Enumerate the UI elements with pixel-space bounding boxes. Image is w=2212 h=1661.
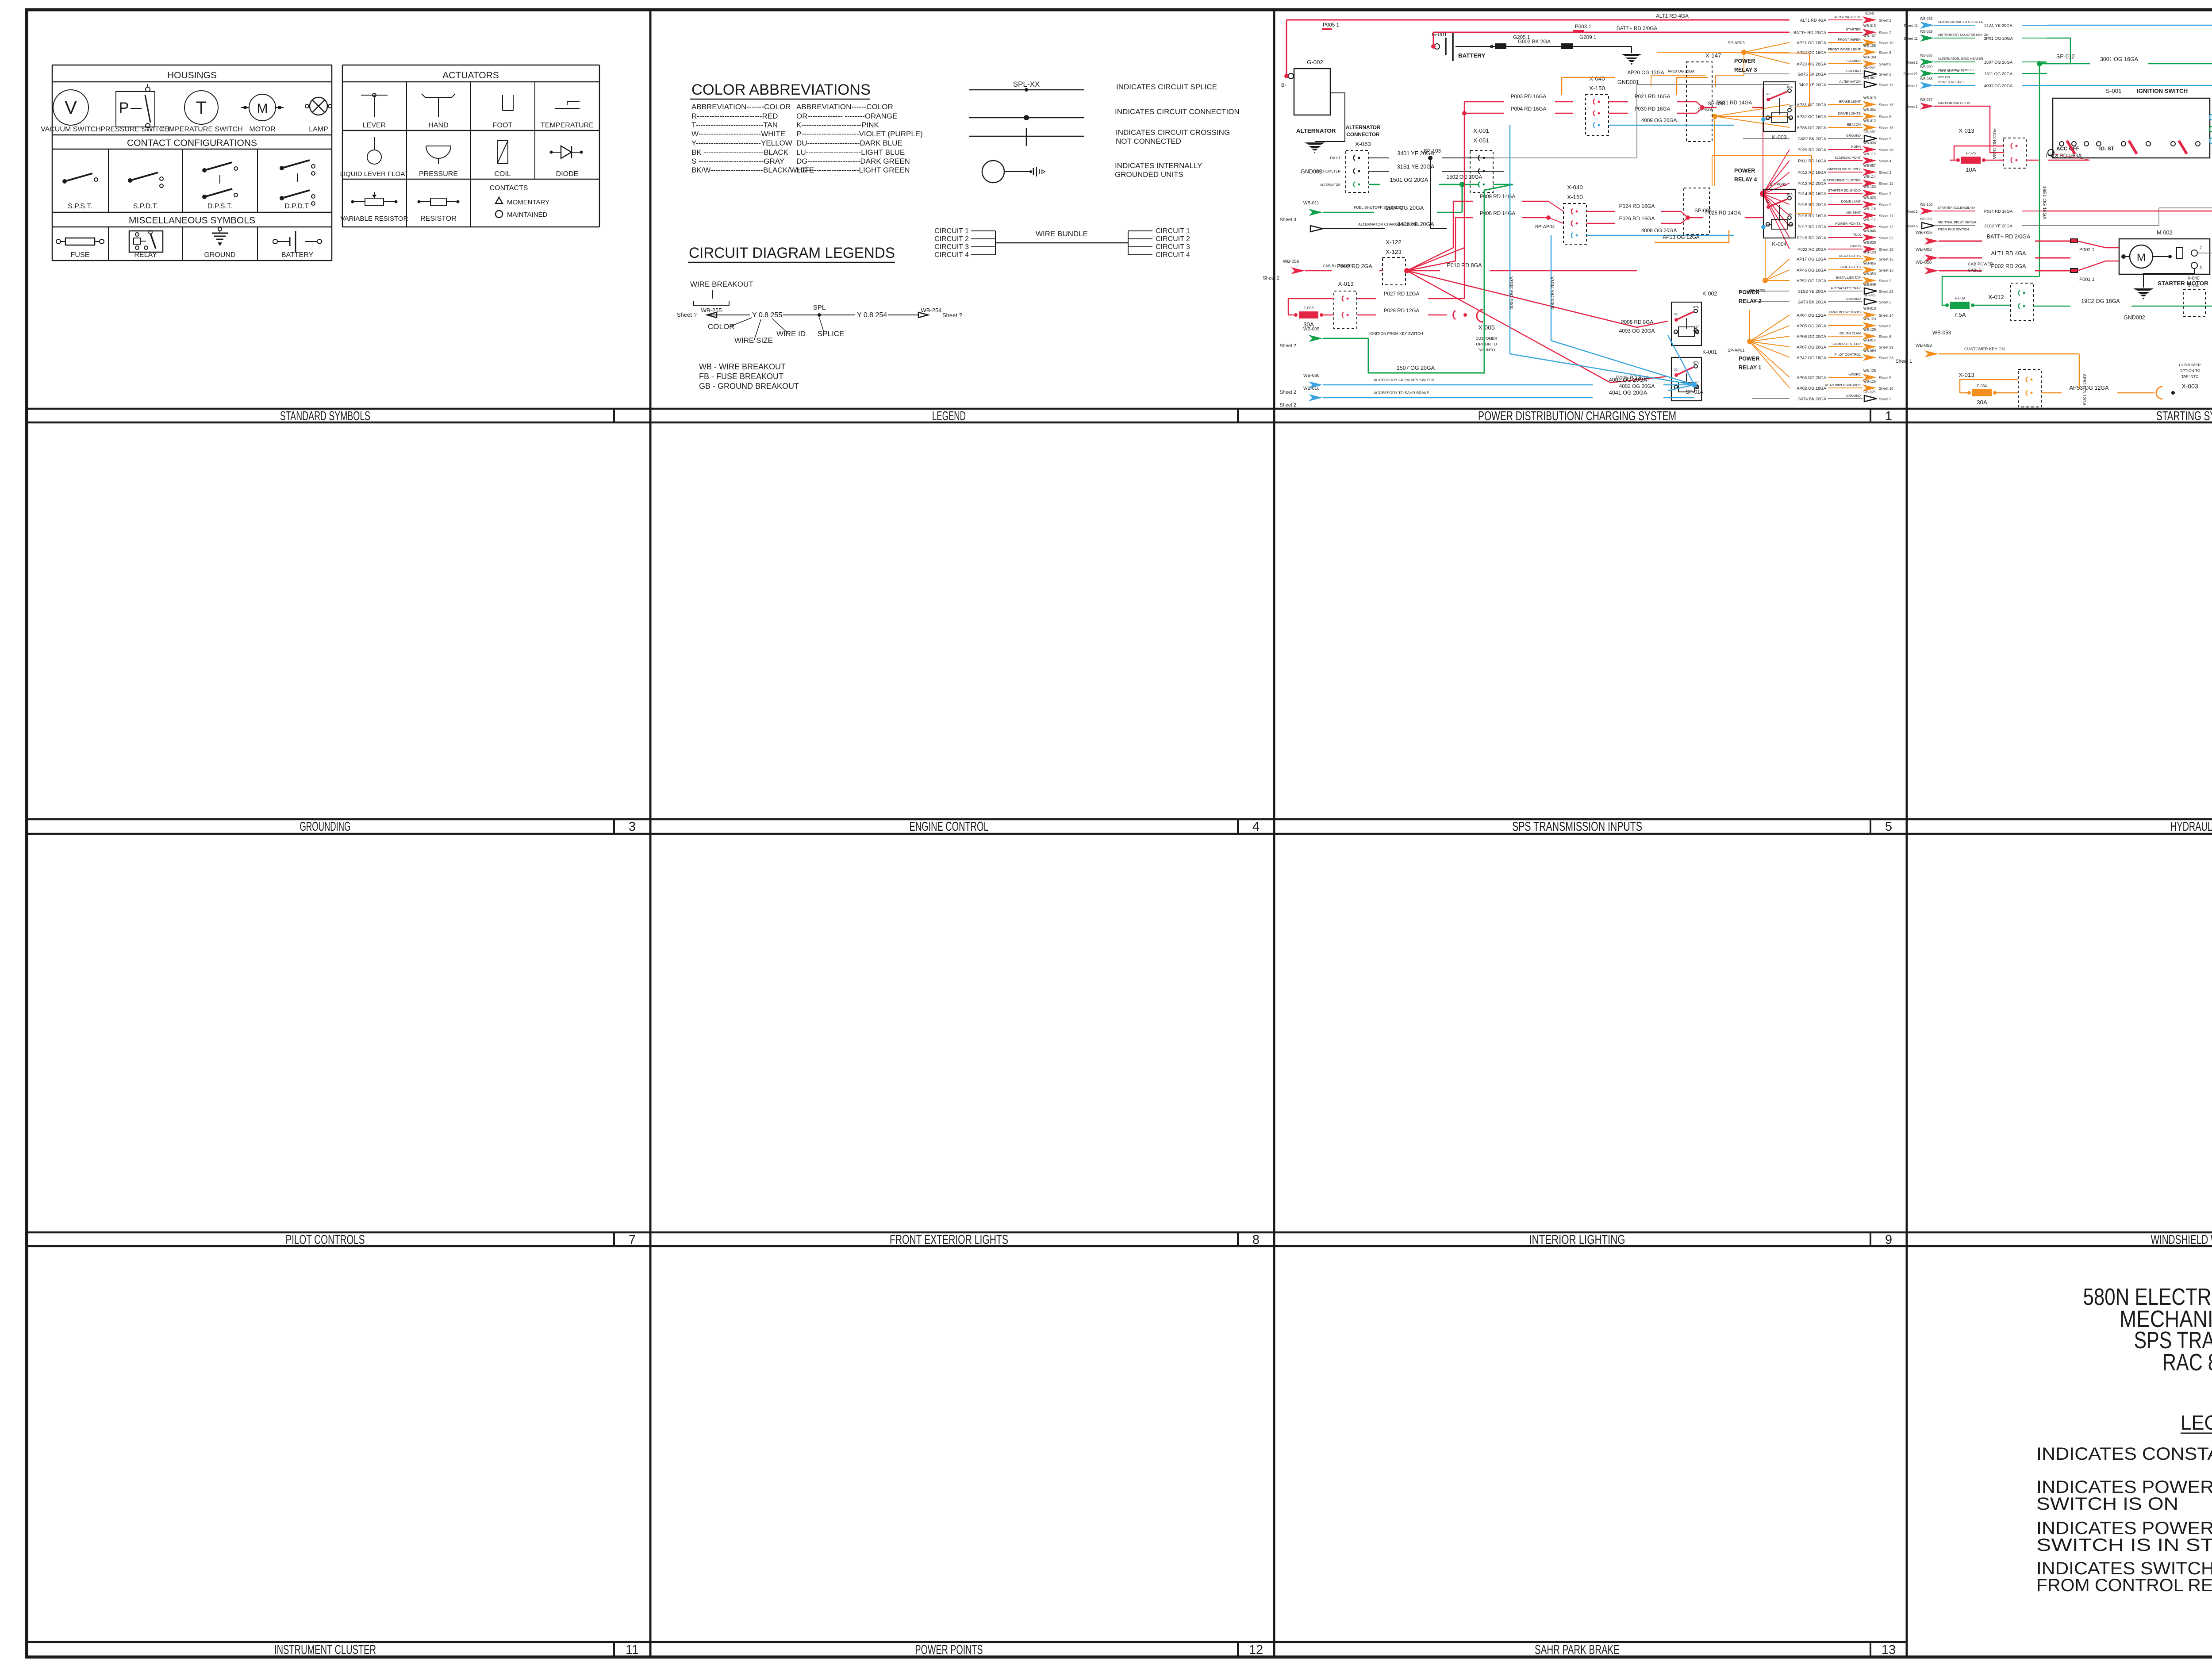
svg-text:COLOR ABBREVIATIONS: COLOR ABBREVIATIONS <box>691 81 871 98</box>
svg-text:BATTERY: BATTERY <box>1458 52 1485 59</box>
svg-text:TRAX: TRAX <box>1852 233 1861 237</box>
svg-text:WB-046: WB-046 <box>1863 229 1876 233</box>
svg-text:ALT TACH TO TRAX: ALT TACH TO TRAX <box>1831 286 1861 290</box>
svg-text:4006 OG 20GA: 4006 OG 20GA <box>1509 276 1514 310</box>
svg-text:CIRCUIT 3: CIRCUIT 3 <box>1156 243 1190 251</box>
svg-text:WB-004: WB-004 <box>1863 108 1876 112</box>
svg-text:M: M <box>2137 252 2146 264</box>
svg-text:R--------------------------RED: R--------------------------RED <box>691 112 778 120</box>
svg-text:Sheet 2: Sheet 2 <box>1279 343 1296 349</box>
svg-text:FROM FNR SWITCH: FROM FNR SWITCH <box>1938 227 1969 231</box>
svg-text:30: 30 <box>1674 368 1678 372</box>
svg-text:TAP INTO: TAP INTO <box>2181 374 2199 379</box>
svg-text:4: 4 <box>1252 820 1260 834</box>
svg-text:SP-AP04: SP-AP04 <box>1535 224 1555 230</box>
svg-text:INSTRUMENT CLUSTER KEY ON: INSTRUMENT CLUSTER KEY ON <box>1938 33 1989 37</box>
svg-text:COMFORT STEER: COMFORT STEER <box>1832 342 1861 346</box>
svg-text:FROM CONTROL RELAYS: FROM CONTROL RELAYS <box>2036 1576 2212 1595</box>
svg-text:Sheet 14: Sheet 14 <box>1879 314 1893 318</box>
svg-text:STARTER MOTOR: STARTER MOTOR <box>2158 280 2208 287</box>
svg-text:MOMENTARY: MOMENTARY <box>507 199 549 206</box>
svg-text:ACCESSORY FROM KEY SWITCH: ACCESSORY FROM KEY SWITCH <box>1374 378 1434 382</box>
svg-text:3: 3 <box>2200 265 2202 270</box>
svg-text:Sheet 2: Sheet 2 <box>1879 279 1892 283</box>
svg-text:CABLE: CABLE <box>1968 268 1982 272</box>
svg-text:VACUUM SWITCH: VACUUM SWITCH <box>41 126 101 133</box>
svg-text:SAHR PARK BRAKE: SAHR PARK BRAKE <box>1535 1643 1620 1657</box>
svg-text:Sheet 22: Sheet 22 <box>1879 290 1893 294</box>
svg-text:Sheet 1: Sheet 1 <box>1905 105 1918 109</box>
svg-text:WB-053: WB-053 <box>1932 330 1951 336</box>
svg-text:Sheet 16: Sheet 16 <box>1879 269 1893 272</box>
svg-text:GB - GROUND BREAKOUT: GB - GROUND BREAKOUT <box>699 382 799 391</box>
svg-text:Sheet 3: Sheet 3 <box>1879 73 1892 77</box>
svg-text:4009 OG 20GA: 4009 OG 20GA <box>1641 118 1677 123</box>
svg-text:Sheet 5: Sheet 5 <box>1905 224 1918 228</box>
svg-text:ALTERNATOR: ALTERNATOR <box>1839 80 1861 84</box>
svg-text:Sheet 6: Sheet 6 <box>1879 324 1892 328</box>
svg-text:WB-117: WB-117 <box>1863 218 1876 222</box>
svg-text:BK ------------------------BLA: BK ------------------------BLACK <box>691 148 789 157</box>
svg-text:BATTERY: BATTERY <box>281 251 314 259</box>
svg-text:Sheet 12: Sheet 12 <box>1879 225 1893 229</box>
svg-text:AP23 OG 20GA: AP23 OG 20GA <box>1797 61 1826 66</box>
svg-text:X-003: X-003 <box>2181 383 2198 390</box>
svg-text:4041 OG 20GA: 4041 OG 20GA <box>1609 390 1647 396</box>
svg-text:AP04 OG 12GA: AP04 OG 12GA <box>1797 313 1826 318</box>
svg-text:WB-005: WB-005 <box>1920 54 1933 58</box>
svg-text:BATT+ RD 2/0GA: BATT+ RD 2/0GA <box>1987 234 2031 240</box>
svg-text:1507 OG 20GA: 1507 OG 20GA <box>1984 60 2013 65</box>
svg-text:FB - FUSE BREAKOUT: FB - FUSE BREAKOUT <box>699 372 783 381</box>
svg-text:3P01 OG 20GA: 3P01 OG 20GA <box>1984 36 2013 41</box>
svg-text:INSTRUMENT CLUSTER: INSTRUMENT CLUSTER <box>274 1643 376 1657</box>
svg-text:WB-053: WB-053 <box>1916 343 1932 348</box>
svg-text:ALT1 RD 4GA: ALT1 RD 4GA <box>1800 18 1827 23</box>
svg-text:Sheet 18: Sheet 18 <box>1879 148 1893 152</box>
svg-text:HORN: HORN <box>1851 145 1861 149</box>
svg-text:S-001: S-001 <box>2106 88 2121 94</box>
svg-text:CONTACTS: CONTACTS <box>490 184 528 192</box>
svg-text:POWER RELAYS: POWER RELAYS <box>1938 80 1964 84</box>
svg-text:3001 OG 16GA: 3001 OG 16GA <box>2100 56 2139 62</box>
svg-text:P005 1: P005 1 <box>1323 22 1339 28</box>
svg-text:Sheet 22: Sheet 22 <box>1879 236 1893 240</box>
svg-text:Sheet 1: Sheet 1 <box>1905 84 1918 88</box>
svg-text:WIRE BREAKOUT: WIRE BREAKOUT <box>690 280 753 288</box>
svg-text:Sheet 10: Sheet 10 <box>1879 387 1893 391</box>
svg-text:RELAY 3: RELAY 3 <box>1734 67 1757 73</box>
svg-text:Sheet 10: Sheet 10 <box>1879 41 1893 45</box>
svg-text:P024 RD 16GA: P024 RD 16GA <box>1619 203 1655 209</box>
svg-text:X-040: X-040 <box>1567 184 1582 191</box>
svg-text:ACC OFF: ACC OFF <box>2056 146 2079 152</box>
svg-text:WB-089: WB-089 <box>1863 349 1876 353</box>
svg-text:30A: 30A <box>1977 399 1987 406</box>
svg-text:STANDARD SYMBOLS: STANDARD SYMBOLS <box>280 409 370 423</box>
svg-text:P013 RD 20GA: P013 RD 20GA <box>1797 181 1826 186</box>
svg-text:WB-019: WB-019 <box>1863 96 1876 100</box>
svg-text:CUSTOMER: CUSTOMER <box>1475 336 1497 341</box>
svg-text:3: 3 <box>629 820 636 834</box>
svg-text:WB-036: WB-036 <box>1863 141 1876 145</box>
svg-text:BATT+ RD 2/0GA: BATT+ RD 2/0GA <box>1793 30 1827 35</box>
svg-text:WB-112: WB-112 <box>1863 152 1876 156</box>
svg-text:INDICATES CONSTANT POWER: INDICATES CONSTANT POWER <box>2036 1444 2212 1464</box>
svg-text:12: 12 <box>1249 1643 1263 1657</box>
svg-text:4WD/RC: 4WD/RC <box>1848 372 1861 376</box>
svg-text:F-025: F-025 <box>1966 151 1976 155</box>
svg-text:CAB POWER: CAB POWER <box>1968 261 1993 266</box>
svg-text:P016 RD 16GA: P016 RD 16GA <box>1797 213 1826 218</box>
svg-text:87: 87 <box>1695 326 1699 329</box>
svg-text:AP42 OG 18GA: AP42 OG 18GA <box>1797 355 1826 360</box>
svg-text:T---------------------------TA: T---------------------------TAN <box>691 121 778 129</box>
svg-text:CIRCUIT 3: CIRCUIT 3 <box>934 243 969 251</box>
svg-text:ACTUATORS: ACTUATORS <box>442 70 499 81</box>
svg-text:WB-103: WB-103 <box>1863 185 1876 189</box>
svg-text:CIRCUIT 2: CIRCUIT 2 <box>1156 235 1190 243</box>
svg-text:X-123: X-123 <box>1386 249 1401 255</box>
svg-text:Sheet 9: Sheet 9 <box>1879 203 1892 207</box>
svg-text:Y--------------------------YEL: Y--------------------------YELLOW <box>691 139 792 147</box>
svg-text:WB-0: WB-0 <box>1865 12 1874 15</box>
svg-text:X-083: X-083 <box>1355 141 1371 147</box>
svg-text:WB-109: WB-109 <box>1863 55 1876 59</box>
svg-text:RAC 84470422: RAC 84470422 <box>2162 1349 2212 1376</box>
svg-text:STARTER SOLENOID B+: STARTER SOLENOID B+ <box>1938 206 1975 210</box>
svg-text:FOOT: FOOT <box>493 122 513 129</box>
svg-text:P004 RD 16GA: P004 RD 16GA <box>1511 106 1547 112</box>
svg-text:HOUSINGS: HOUSINGS <box>167 70 217 81</box>
svg-text:X-122: X-122 <box>1386 239 1401 246</box>
svg-text:K------------------------PINK: K------------------------PINK <box>796 121 879 129</box>
svg-text:X-040: X-040 <box>2188 276 2200 281</box>
svg-text:DG---------------------DARK GR: DG---------------------DARK GREEN <box>796 157 910 165</box>
svg-text:OPTION TO: OPTION TO <box>2180 368 2200 373</box>
svg-text:WB-010: WB-010 <box>1303 386 1320 391</box>
svg-text:S.P.D.T.: S.P.D.T. <box>133 203 158 210</box>
svg-text:WIRE BUNDLE: WIRE BUNDLE <box>1036 230 1088 238</box>
svg-text:WINDSHIELD WIPERS: WINDSHIELD WIPERS <box>2151 1233 2212 1247</box>
svg-text:W-------------------------WHIT: W-------------------------WHITE <box>691 130 785 138</box>
svg-text:HVAC BLOWER RTD: HVAC BLOWER RTD <box>1829 310 1861 314</box>
svg-text:D.P.S.T.: D.P.S.T. <box>207 203 233 210</box>
svg-text:D.P.D.T.: D.P.D.T. <box>284 203 310 210</box>
svg-text:RELAY: RELAY <box>134 251 157 259</box>
svg-text:DOME LAMP: DOME LAMP <box>1841 199 1861 203</box>
svg-text:INDICATES CIRCUIT CONNECTION: INDICATES CIRCUIT CONNECTION <box>1115 107 1240 116</box>
svg-text:1504 OG 20GA: 1504 OG 20GA <box>1386 205 1424 211</box>
svg-text:PRESSURE: PRESSURE <box>419 170 458 178</box>
svg-text:TEMPERATURE: TEMPERATURE <box>541 122 594 129</box>
svg-text:21C2 YE 20GA: 21C2 YE 20GA <box>1984 223 2013 228</box>
svg-text:IG. ST: IG. ST <box>2099 146 2115 152</box>
svg-text:WB-125: WB-125 <box>1863 380 1876 384</box>
svg-text:Sheet ?: Sheet ? <box>942 312 962 318</box>
svg-text:WB-063: WB-063 <box>1920 17 1932 21</box>
svg-text:P008 RD 8GA: P008 RD 8GA <box>1621 319 1653 325</box>
svg-text:WB-103: WB-103 <box>1920 203 1932 207</box>
svg-text:G082 BK 20GA: G082 BK 20GA <box>1797 136 1826 141</box>
svg-text:GB-026: GB-026 <box>1864 390 1876 394</box>
svg-text:Sheet 4: Sheet 4 <box>1279 217 1296 222</box>
svg-text:GB-027: GB-027 <box>1864 65 1876 69</box>
svg-text:CIRCUIT 2: CIRCUIT 2 <box>934 235 969 243</box>
svg-text:TAP INTO: TAP INTO <box>1478 348 1495 352</box>
svg-text:G074 BK 20GA: G074 BK 20GA <box>1797 396 1826 401</box>
svg-text:P002 RD 2GA: P002 RD 2GA <box>1991 263 2026 269</box>
svg-text:87A: 87A <box>1787 86 1793 89</box>
svg-text:Sheet 8: Sheet 8 <box>1879 62 1892 66</box>
svg-text:WB-012: WB-012 <box>1863 119 1876 123</box>
svg-text:AP06 OG 20GA: AP06 OG 20GA <box>1797 334 1826 339</box>
svg-text:WIRE ID: WIRE ID <box>776 330 806 338</box>
svg-text:FAULT: FAULT <box>1330 156 1340 160</box>
svg-text:INDICATES CIRCUIT CROSSING: INDICATES CIRCUIT CROSSING <box>1116 128 1230 137</box>
svg-text:Sheet 1: Sheet 1 <box>1895 359 1912 364</box>
svg-text:Sheet 16: Sheet 16 <box>1879 126 1893 130</box>
svg-text:WB-023: WB-023 <box>1863 196 1876 200</box>
svg-text:WB-255: WB-255 <box>701 307 722 314</box>
svg-text:AP46 OG 16GA: AP46 OG 16GA <box>1797 268 1826 272</box>
svg-text:X-040: X-040 <box>1589 75 1605 82</box>
svg-text:GROUNDED UNITS: GROUNDED UNITS <box>1115 170 1183 179</box>
svg-text:Sheet 3: Sheet 3 <box>1879 300 1892 304</box>
svg-text:V: V <box>65 97 77 118</box>
svg-text:4003 OG 20GA: 4003 OG 20GA <box>1619 328 1655 334</box>
svg-text:Sheet 11: Sheet 11 <box>1904 37 1918 41</box>
svg-text:G075 BK 20GA: G075 BK 20GA <box>1797 72 1826 77</box>
svg-text:SIDE LIGHTS: SIDE LIGHTS <box>1840 265 1861 269</box>
svg-text:IGNITION SWITCH: IGNITION SWITCH <box>2137 88 2188 94</box>
svg-text:FLASHER: FLASHER <box>1846 59 1861 63</box>
svg-text:P026 RD 16GA: P026 RD 16GA <box>1619 216 1655 222</box>
svg-text:GND002: GND002 <box>2124 315 2145 321</box>
svg-text:7.5A: 7.5A <box>1954 311 1966 318</box>
svg-text:X-013: X-013 <box>1959 127 1974 134</box>
svg-text:1507 OG 20GA: 1507 OG 20GA <box>1397 365 1435 371</box>
svg-text:P031 RD 14GA: P031 RD 14GA <box>1717 100 1752 106</box>
svg-text:IGNITION FROM KEY SWITCH: IGNITION FROM KEY SWITCH <box>1369 331 1423 336</box>
svg-text:AP36 OG 20GA: AP36 OG 20GA <box>1797 125 1826 130</box>
svg-text:Sheet 19: Sheet 19 <box>1879 345 1893 349</box>
svg-text:RELAY 1: RELAY 1 <box>1739 364 1761 371</box>
svg-text:WB-123: WB-123 <box>1863 317 1876 321</box>
svg-text:Sheet 11: Sheet 11 <box>1879 182 1893 186</box>
svg-text:19E1 OG 18GA: 19E1 OG 18GA <box>2042 186 2047 220</box>
svg-text:AP02 OG 18GA: AP02 OG 18GA <box>1797 386 1826 391</box>
svg-text:POWER DISTRIBUTION/ CHARGING S: POWER DISTRIBUTION/ CHARGING SYSTEM <box>1478 409 1676 423</box>
svg-text:SPL-XX: SPL-XX <box>1013 80 1040 88</box>
svg-text:POWER: POWER <box>1739 289 1759 295</box>
svg-text:WB - WIRE BREAKOUT: WB - WIRE BREAKOUT <box>699 362 786 371</box>
svg-text:NOT CONNECTED: NOT CONNECTED <box>1116 137 1181 146</box>
svg-text:GROUND: GROUND <box>204 251 235 259</box>
svg-text:4002 OG 20GA: 4002 OG 20GA <box>1619 384 1655 389</box>
svg-text:P027 RD 12GA: P027 RD 12GA <box>1384 291 1420 297</box>
svg-text:X-013: X-013 <box>1338 280 1353 287</box>
svg-text:30: 30 <box>1766 200 1770 203</box>
svg-text:ALTERNATOR: ALTERNATOR <box>1320 184 1340 187</box>
svg-text:WB-067: WB-067 <box>1863 76 1876 80</box>
svg-text:CIRCUIT 4: CIRCUIT 4 <box>1156 251 1190 259</box>
svg-text:RESISTOR: RESISTOR <box>420 215 457 222</box>
svg-text:P030 RD 16GA: P030 RD 16GA <box>1635 106 1671 112</box>
svg-text:Sheet 2: Sheet 2 <box>1279 403 1296 408</box>
svg-text:IGNITION SW SUPPLY: IGNITION SW SUPPLY <box>1827 167 1861 171</box>
svg-text:AIR SEAT: AIR SEAT <box>1846 211 1861 215</box>
svg-text:INSTALLER TAP: INSTALLER TAP <box>1836 276 1861 280</box>
svg-text:1511 OG 20GA: 1511 OG 20GA <box>1984 71 2013 76</box>
svg-text:PRESSURE SWITCH: PRESSURE SWITCH <box>100 126 169 133</box>
svg-text:AP53 OG 12GA: AP53 OG 12GA <box>2070 385 2109 391</box>
svg-text:WB-086: WB-086 <box>1303 373 1320 378</box>
svg-text:30: 30 <box>1674 313 1678 316</box>
svg-text:P002 RD 2GA: P002 RD 2GA <box>1337 263 1372 269</box>
svg-text:ALTERNATOR, GRID HEATER: ALTERNATOR, GRID HEATER <box>1938 57 1983 61</box>
svg-text:BEACON: BEACON <box>1847 123 1861 127</box>
svg-text:P-----------------------VIOLET: P-----------------------VIOLET (PURPLE) <box>796 130 923 138</box>
svg-text:3402 YE 20GA: 3402 YE 20GA <box>1799 82 1827 87</box>
svg-text:SPL: SPL <box>813 304 826 311</box>
svg-text:POWER POINTS: POWER POINTS <box>915 1643 983 1657</box>
svg-text:Y 0.8 255: Y 0.8 255 <box>752 311 782 319</box>
svg-text:P: P <box>119 100 129 116</box>
svg-text:X-150: X-150 <box>2188 284 2200 288</box>
svg-text:4001 OG 20GA: 4001 OG 20GA <box>1609 377 1647 383</box>
svg-text:4001 OG 20GA: 4001 OG 20GA <box>1984 83 2013 88</box>
svg-text:87: 87 <box>1789 213 1793 216</box>
svg-text:M: M <box>257 101 268 116</box>
svg-text:Sheet 17: Sheet 17 <box>1879 214 1893 218</box>
svg-text:Sheet 8: Sheet 8 <box>1879 51 1892 55</box>
svg-text:X-150: X-150 <box>1567 194 1582 200</box>
svg-text:Sheet 16: Sheet 16 <box>1879 257 1893 261</box>
svg-text:GB-060: GB-060 <box>1864 130 1876 134</box>
svg-text:WB-056: WB-056 <box>1916 260 1932 265</box>
svg-text:STARTING SYSTEM: STARTING SYSTEM <box>2156 409 2212 423</box>
svg-text:P017 RD 12GA: P017 RD 12GA <box>1797 224 1826 229</box>
svg-text:ALTERNATOR B+: ALTERNATOR B+ <box>1834 15 1861 19</box>
svg-text:WB-053: WB-053 <box>1863 272 1876 276</box>
svg-text:P001 1: P001 1 <box>2079 277 2095 282</box>
svg-text:LIQUID LEVER FLOAT: LIQUID LEVER FLOAT <box>340 170 409 178</box>
svg-text:X-051: X-051 <box>1473 137 1489 144</box>
svg-text:HYDRAULICS: HYDRAULICS <box>2170 820 2212 834</box>
svg-text:SP-AP01: SP-AP01 <box>1728 348 1745 353</box>
svg-text:P025 RD 14GA: P025 RD 14GA <box>1705 210 1741 216</box>
svg-text:P011 RD 16GA: P011 RD 16GA <box>1798 158 1827 163</box>
svg-text:WB-055: WB-055 <box>1863 261 1876 265</box>
svg-text:WB-120: WB-120 <box>1863 250 1876 254</box>
svg-text:WB-049: WB-049 <box>1863 283 1876 287</box>
svg-text:WB-005: WB-005 <box>1303 327 1320 332</box>
svg-text:AP17 OG 12GA: AP17 OG 12GA <box>1797 257 1826 261</box>
svg-text:ALTERNATOR: ALTERNATOR <box>1346 125 1381 130</box>
svg-text:REAR LIGHTS: REAR LIGHTS <box>1839 254 1861 258</box>
svg-text:Sheet 4: Sheet 4 <box>1879 159 1892 163</box>
svg-text:P012 RD 16GA: P012 RD 16GA <box>1992 128 1997 159</box>
svg-text:INDICATES CIRCUIT SPLICE: INDICATES CIRCUIT SPLICE <box>1116 83 1217 91</box>
svg-text:WB-014: WB-014 <box>1863 338 1876 342</box>
svg-text:GB-025: GB-025 <box>1864 293 1876 297</box>
svg-text:Sheet 1: Sheet 1 <box>1905 210 1918 214</box>
svg-text:IGNITION SWITCH B+: IGNITION SWITCH B+ <box>1938 101 1971 105</box>
svg-text:COIL: COIL <box>494 170 511 178</box>
svg-text:WB-015: WB-015 <box>1863 24 1876 28</box>
svg-text:VARIABLE RESISTOR: VARIABLE RESISTOR <box>341 215 408 222</box>
svg-text:ALTERNATOR: ALTERNATOR <box>1296 127 1336 134</box>
svg-text:FRONT EXTERIOR LIGHTS: FRONT EXTERIOR LIGHTS <box>890 1233 1008 1247</box>
svg-text:SP-AP03: SP-AP03 <box>1728 40 1745 45</box>
svg-text:POWER: POWER <box>1734 168 1755 174</box>
svg-text:X-013: X-013 <box>1959 372 1974 378</box>
svg-text:WB-015: WB-015 <box>1916 230 1932 235</box>
svg-text:CRANK SIGNAL TO CLUSTER: CRANK SIGNAL TO CLUSTER <box>1938 20 1983 24</box>
svg-text:WB-057: WB-057 <box>1920 98 1932 102</box>
svg-text:P015 RD 20GA: P015 RD 20GA <box>1797 202 1826 207</box>
svg-text:GND001: GND001 <box>1617 79 1639 85</box>
svg-text:CIRCUIT DIAGRAM LEGENDS: CIRCUIT DIAGRAM LEGENDS <box>689 245 895 261</box>
svg-text:Sheet 15: Sheet 15 <box>1879 248 1893 252</box>
svg-text:MOTOR: MOTOR <box>249 126 275 133</box>
svg-text:Sheet 2: Sheet 2 <box>1263 276 1279 281</box>
svg-text:INTERIOR LIGHTING: INTERIOR LIGHTING <box>1529 1233 1625 1247</box>
svg-text:WB-107: WB-107 <box>1863 34 1876 38</box>
svg-text:AP07 OG 20GA: AP07 OG 20GA <box>1797 345 1826 349</box>
svg-text:LEGEND: LEGEND <box>2181 1411 2212 1434</box>
svg-text:WB-254: WB-254 <box>921 307 942 314</box>
svg-text:CUSTOMER KEY ON: CUSTOMER KEY ON <box>1964 346 2005 351</box>
svg-text:87A: 87A <box>1787 193 1793 196</box>
svg-text:DU---------------------DARK BL: DU---------------------DARK BLUE <box>796 139 902 147</box>
svg-text:GROUNDING: GROUNDING <box>300 820 351 834</box>
svg-text:F-009: F-009 <box>1955 296 1965 300</box>
svg-text:P002 1: P002 1 <box>2079 247 2095 253</box>
svg-text:K-002: K-002 <box>1702 291 1717 297</box>
svg-text:T: T <box>196 98 207 118</box>
svg-text:DRIVE LIGHTS: DRIVE LIGHTS <box>1838 111 1861 115</box>
svg-text:AP20 OG 12GA: AP20 OG 12GA <box>1667 69 1694 73</box>
svg-text:RELAY 4: RELAY 4 <box>1734 176 1757 183</box>
svg-text:WB-011: WB-011 <box>1303 201 1319 206</box>
svg-text:87A: 87A <box>1694 306 1699 309</box>
svg-text:P014 RD 16GA: P014 RD 16GA <box>1797 191 1826 196</box>
svg-text:Sheet 1: Sheet 1 <box>1905 61 1918 65</box>
svg-text:POWER: POWER <box>1739 356 1759 362</box>
svg-text:RELAY 2: RELAY 2 <box>1739 298 1761 304</box>
svg-text:INSTRUMENT CLUSTER: INSTRUMENT CLUSTER <box>1823 178 1861 182</box>
svg-text:31S1 YE 20GA: 31S1 YE 20GA <box>1397 164 1435 170</box>
svg-text:B+: B+ <box>1281 83 1287 88</box>
svg-text:NEUTRAL RELAY SIGNAL: NEUTRAL RELAY SIGNAL <box>1938 220 1977 224</box>
svg-text:GROUND: GROUND <box>1846 69 1861 73</box>
svg-text:13: 13 <box>1882 1643 1896 1657</box>
svg-text:11: 11 <box>626 1643 639 1657</box>
svg-text:F-034: F-034 <box>1977 384 1987 388</box>
svg-text:G-002: G-002 <box>1307 59 1323 65</box>
svg-text:SP-012: SP-012 <box>2056 54 2075 60</box>
svg-text:MISCELLANEOUS SYMBOLS: MISCELLANEOUS SYMBOLS <box>129 215 255 226</box>
svg-text:LAMP: LAMP <box>309 126 328 133</box>
svg-text:RADIO: RADIO <box>1851 244 1861 248</box>
svg-text:X-147: X-147 <box>1705 52 1721 59</box>
svg-text:QC, EH CLAM: QC, EH CLAM <box>1839 331 1861 335</box>
svg-text:TEMPERATURE SWITCH: TEMPERATURE SWITCH <box>160 126 242 133</box>
svg-text:Sheet 3: Sheet 3 <box>1879 137 1892 141</box>
svg-text:P003 1: P003 1 <box>1575 24 1591 30</box>
